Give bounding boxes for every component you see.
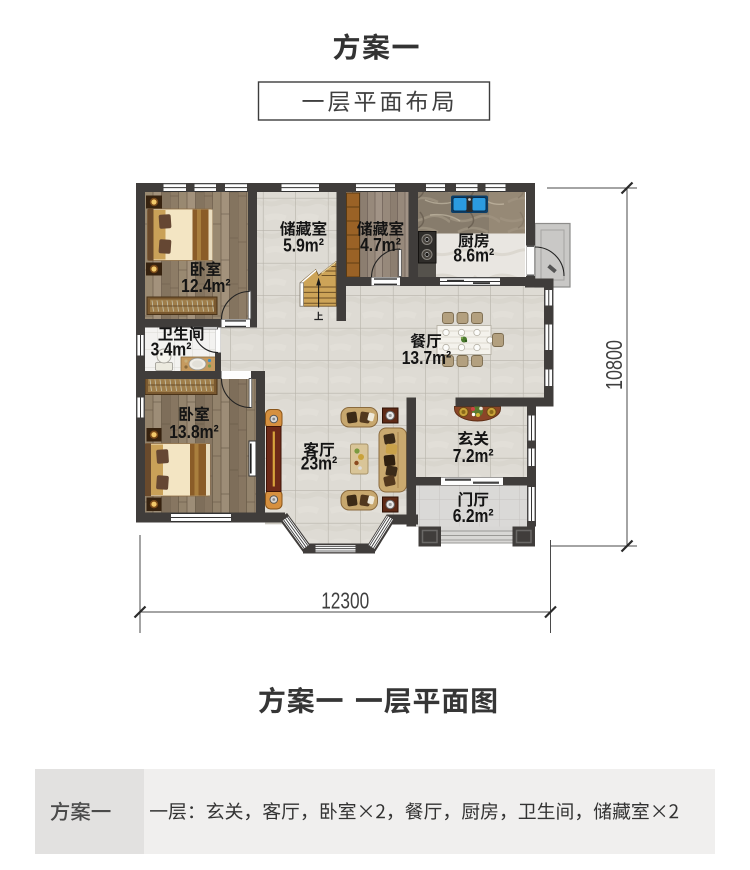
svg-text:13.8m²: 13.8m² [169, 421, 219, 442]
svg-text:12300: 12300 [321, 588, 369, 614]
svg-text:13.7m²: 13.7m² [402, 347, 452, 368]
svg-text:3.4m²: 3.4m² [151, 339, 192, 360]
svg-text:5.9m²: 5.9m² [283, 235, 324, 256]
svg-text:12.4m²: 12.4m² [181, 275, 231, 296]
svg-text:10800: 10800 [601, 340, 627, 390]
svg-text:7.2m²: 7.2m² [453, 445, 494, 466]
svg-text:8.6m²: 8.6m² [453, 245, 494, 266]
svg-text:23m²: 23m² [301, 453, 338, 474]
svg-text:6.2m²: 6.2m² [453, 505, 494, 526]
svg-text:4.7m²: 4.7m² [360, 234, 401, 255]
